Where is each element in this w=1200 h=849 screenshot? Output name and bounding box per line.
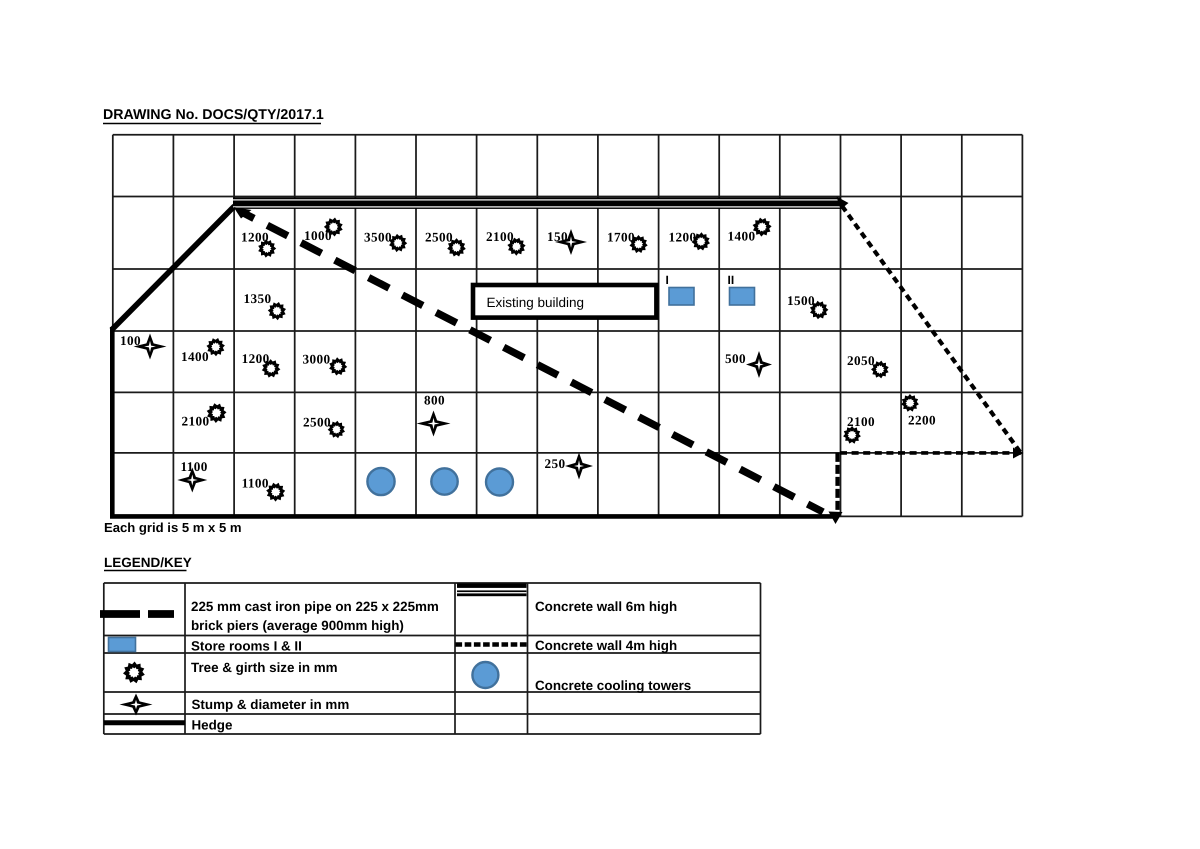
svg-text:Tree & girth size in mm: Tree & girth size in mm bbox=[191, 660, 338, 675]
svg-text:225 mm cast iron pipe on 225 x: 225 mm cast iron pipe on 225 x 225mm bbox=[191, 599, 439, 614]
svg-text:1500: 1500 bbox=[787, 293, 815, 308]
svg-text:1100: 1100 bbox=[181, 459, 208, 474]
svg-text:Existing building: Existing building bbox=[487, 295, 585, 310]
svg-text:Each grid is 5 m x 5 m: Each grid is 5 m x 5 m bbox=[104, 520, 242, 535]
svg-text:800: 800 bbox=[424, 393, 445, 408]
svg-text:250: 250 bbox=[545, 456, 566, 471]
svg-text:2500: 2500 bbox=[425, 230, 453, 245]
svg-text:500: 500 bbox=[725, 351, 746, 366]
svg-text:1400: 1400 bbox=[181, 349, 209, 364]
svg-text:Store rooms I & II: Store rooms I & II bbox=[191, 639, 302, 654]
svg-text:3500: 3500 bbox=[364, 230, 392, 245]
svg-text:2050: 2050 bbox=[847, 353, 875, 368]
svg-text:1400: 1400 bbox=[728, 229, 756, 244]
svg-text:2500: 2500 bbox=[303, 415, 331, 430]
svg-text:Concrete wall 6m high: Concrete wall 6m high bbox=[535, 599, 677, 614]
svg-text:Concrete wall 4m high: Concrete wall 4m high bbox=[535, 638, 677, 653]
svg-text:3000: 3000 bbox=[303, 352, 331, 367]
svg-text:brick piers (average 900mm hig: brick piers (average 900mm high) bbox=[191, 618, 404, 633]
svg-text:Hedge: Hedge bbox=[192, 718, 233, 733]
svg-text:I: I bbox=[666, 273, 669, 287]
svg-text:II: II bbox=[728, 273, 735, 287]
svg-text:2100: 2100 bbox=[847, 414, 875, 429]
svg-text:LEGEND/KEY: LEGEND/KEY bbox=[104, 555, 192, 570]
svg-text:1350: 1350 bbox=[244, 291, 272, 306]
svg-text:1100: 1100 bbox=[242, 476, 269, 491]
svg-text:1700: 1700 bbox=[607, 230, 635, 245]
svg-text:2100: 2100 bbox=[182, 414, 210, 429]
svg-text:2100: 2100 bbox=[486, 229, 514, 244]
svg-text:2200: 2200 bbox=[908, 413, 936, 428]
svg-text:DRAWING No. DOCS/QTY/2017.1: DRAWING No. DOCS/QTY/2017.1 bbox=[103, 107, 324, 123]
svg-text:Stump & diameter in mm: Stump & diameter in mm bbox=[192, 697, 350, 712]
svg-text:Concrete cooling towers: Concrete cooling towers bbox=[535, 678, 691, 693]
